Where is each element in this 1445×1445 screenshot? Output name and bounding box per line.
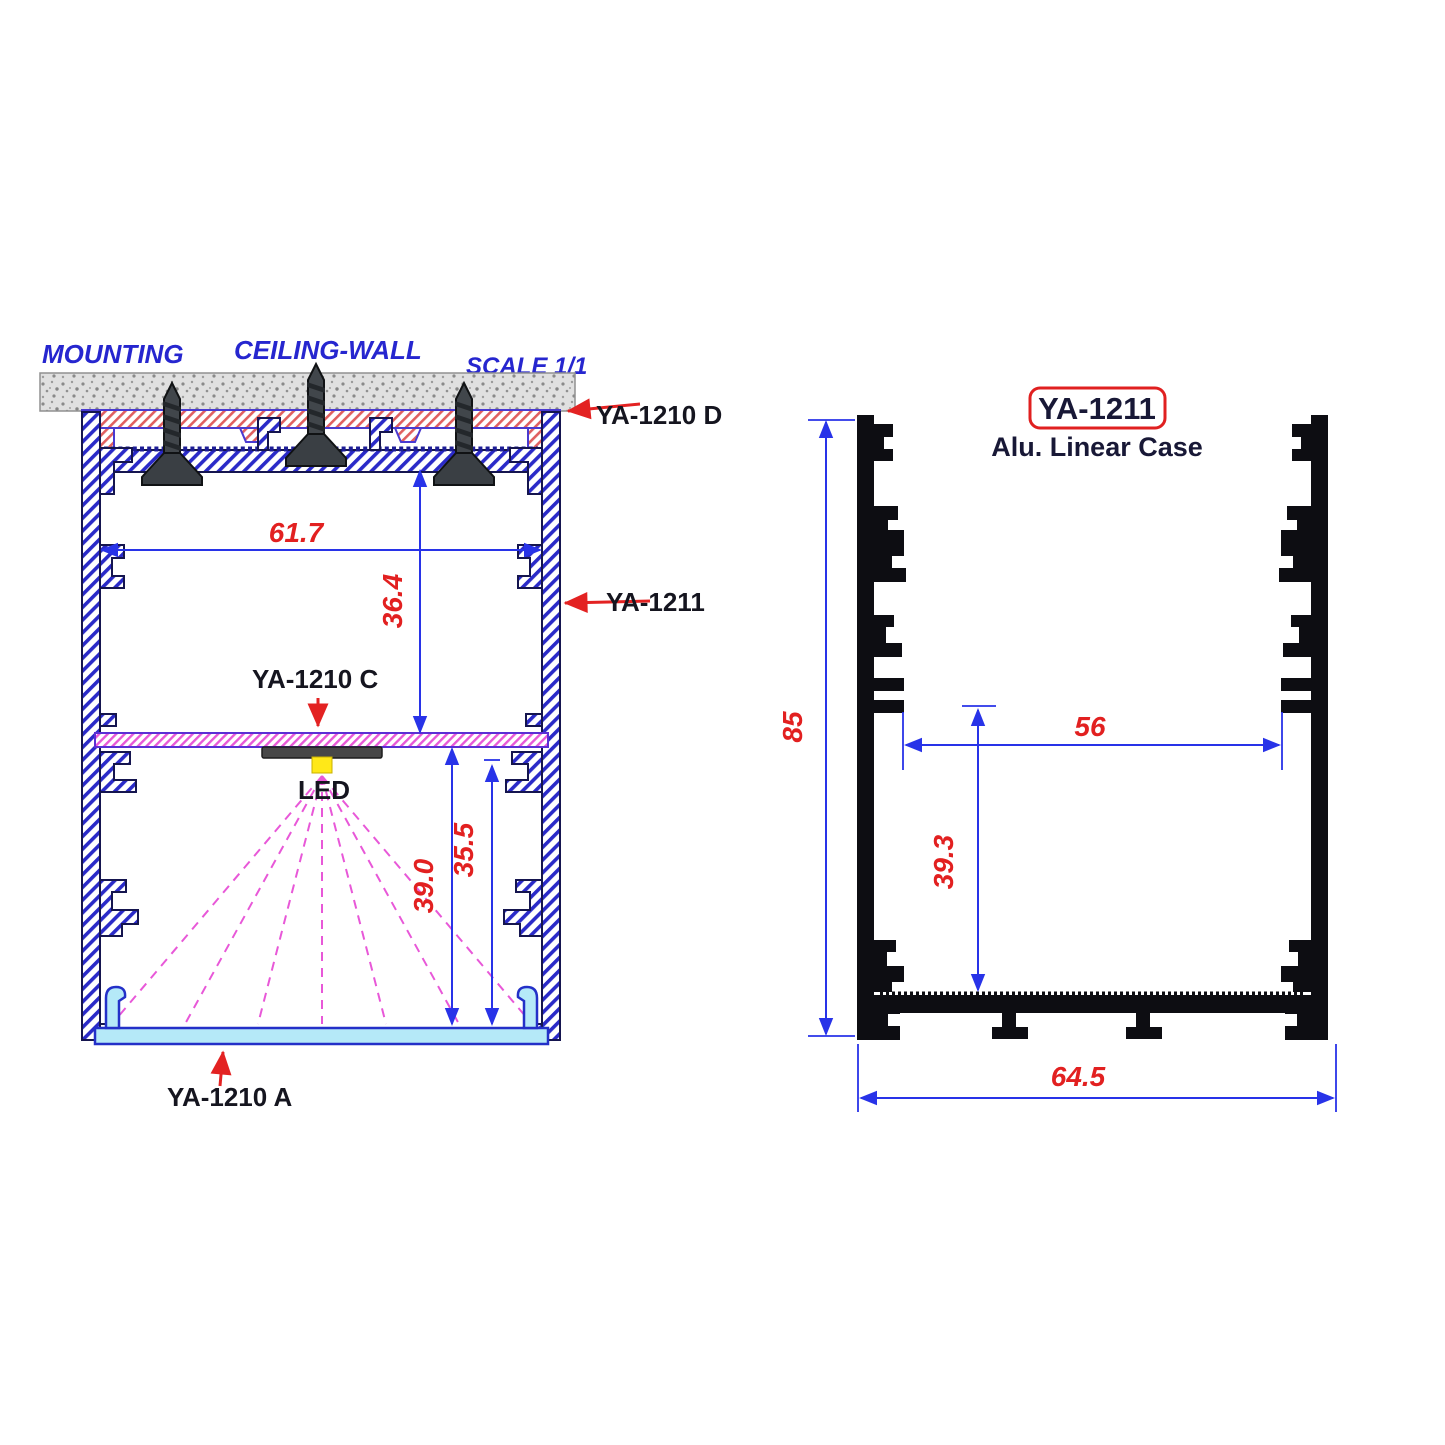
plate-hook-left — [100, 752, 136, 792]
technical-drawing-page: MOUNTING CEILING-WALL SCALE 1/1 — [0, 0, 1445, 1445]
dim-value-lower-height: 39.3 — [928, 834, 959, 889]
diffuser-ya1210a — [95, 987, 548, 1044]
dim-value-lower-cavity: 39.0 — [408, 858, 439, 913]
plate-step-right — [526, 714, 542, 726]
right-view-bottom — [874, 994, 1311, 1039]
dim-value-overall-width: 64.5 — [1051, 1061, 1106, 1092]
lower-clip-right — [504, 880, 542, 936]
led-plate-ya1210c — [95, 733, 548, 747]
case-right-wall — [542, 412, 560, 1040]
case-left-wall — [82, 412, 100, 1040]
lower-clip-left — [100, 880, 138, 936]
bracket-tooth — [395, 428, 421, 442]
diffuser-strip — [95, 1028, 548, 1044]
dim-value-upper-cavity: 36.4 — [377, 573, 408, 628]
leader-arrow-ya1210a — [220, 1052, 223, 1086]
wall-clip-right — [518, 545, 542, 588]
led-strip-bar — [262, 747, 382, 758]
case-ya1211-section — [82, 412, 560, 1040]
dim-value-slot-width: 56 — [1074, 711, 1106, 742]
bottom-foot — [992, 1027, 1028, 1039]
right-view-right-wall — [1279, 415, 1328, 1040]
subtitle-text: Alu. Linear Case — [991, 432, 1203, 462]
part-number-text: YA-1211 — [1038, 391, 1156, 426]
plate-hook-right — [506, 752, 542, 792]
label-led: LED — [298, 775, 350, 805]
led-light-rays — [112, 776, 532, 1024]
led-chip — [312, 757, 332, 773]
ceiling-wall-heading: CEILING-WALL — [234, 335, 422, 365]
left-view-labels: YA-1210 D YA-1211 YA-1210 C LED YA-1210 … — [167, 400, 722, 1112]
dim-value-overall-height: 85 — [777, 711, 808, 743]
plate-step-left — [100, 714, 116, 726]
bottom-plate — [874, 995, 1311, 1013]
light-ray — [185, 776, 322, 1024]
wall-clip-left — [100, 545, 124, 588]
label-ya1210d: YA-1210 D — [596, 400, 722, 430]
light-ray — [112, 776, 322, 1024]
shelf-hook — [370, 418, 392, 450]
dim-value-diffuser-depth: 35.5 — [448, 822, 479, 877]
diffuser-clip-right — [518, 987, 537, 1028]
diffuser-clip-left — [106, 987, 125, 1028]
bottom-foot — [1126, 1027, 1162, 1039]
mounting-heading: MOUNTING — [42, 339, 184, 369]
left-view-mounting-section: MOUNTING CEILING-WALL SCALE 1/1 — [40, 335, 722, 1112]
right-view-profile-section: YA-1211 Alu. Linear Case 85 56 39.3 — [777, 388, 1336, 1112]
dim-value-inner-width: 61.7 — [269, 517, 325, 548]
right-view-left-wall — [857, 415, 906, 1040]
shelf-hook — [258, 418, 280, 450]
label-ya1211: YA-1211 — [606, 587, 705, 617]
label-ya1210c: YA-1210 C — [252, 664, 378, 694]
label-ya1210a: YA-1210 A — [167, 1082, 292, 1112]
drawing-canvas: MOUNTING CEILING-WALL SCALE 1/1 — [0, 0, 1445, 1445]
